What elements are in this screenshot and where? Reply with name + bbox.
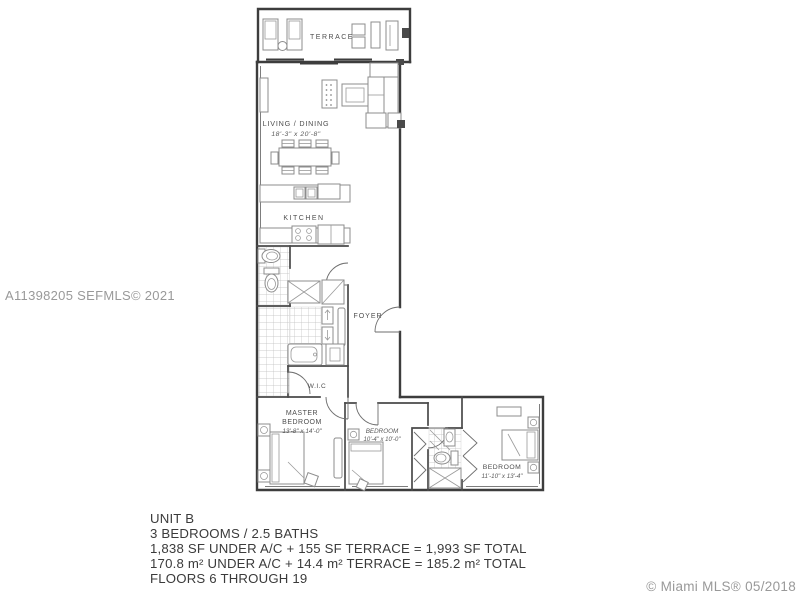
miami-mls-watermark: © Miami MLS® 05/2018 — [646, 579, 796, 594]
wic-label: W.I.C — [308, 383, 326, 390]
terrace-table — [371, 22, 380, 48]
bench — [334, 438, 342, 478]
bedroom2-dims: 10'-4" x 10'-0" — [364, 437, 402, 443]
toilet-tank — [264, 268, 279, 274]
nightstand — [258, 470, 270, 482]
foyer-label: FOYER — [353, 313, 382, 320]
master-bath-floor-2 — [290, 307, 321, 344]
master-bath-floor — [259, 307, 290, 396]
terrace-label: TERRACE — [310, 34, 354, 41]
side-table — [278, 42, 287, 51]
kitchen-fixtures — [260, 184, 350, 244]
stove — [292, 226, 316, 243]
sofa-back — [370, 63, 398, 77]
console — [260, 78, 268, 112]
sqft-line: 1,838 SF UNDER A/C + 155 SF TERRACE = 1,… — [150, 541, 527, 556]
dining-table — [279, 148, 331, 166]
tv-console — [322, 80, 337, 108]
bedroom3-bifold-doors — [463, 430, 477, 482]
floors-line: FLOORS 6 THROUGH 19 — [150, 571, 527, 586]
dresser — [497, 407, 521, 416]
bedroom2-label: BEDROOM — [366, 428, 399, 435]
hall-bench — [338, 308, 345, 346]
sqm-line: 170.8 m² UNDER A/C + 14.4 m² TERRACE = 1… — [150, 556, 527, 571]
bedroom3-label: BEDROOM — [483, 464, 522, 471]
floorplan-page: TERRACE LIVING / DINING 18'-3" x 20'-8" … — [0, 0, 800, 600]
living-dims: 18'-3" x 20'-8" — [271, 131, 320, 138]
vanity-sink — [326, 344, 344, 365]
master-label-1: MASTER — [286, 410, 318, 417]
toilet-tank — [451, 451, 458, 465]
wic-door — [288, 372, 310, 394]
nightstand — [528, 417, 539, 428]
mls-listing-watermark: A11398205 SEFMLS© 2021 — [5, 288, 175, 303]
bedroom3-dims: 11'-10" x 13'-4" — [481, 473, 523, 480]
bedroom2-closet-doors — [414, 432, 426, 482]
unit-name: UNIT B — [150, 511, 527, 526]
bedroom2-door — [356, 403, 378, 425]
living-label: LIVING / DINING — [263, 119, 330, 128]
nightstand — [348, 429, 359, 440]
counter-appliance — [318, 184, 340, 199]
rug — [304, 473, 318, 487]
nightstand — [258, 424, 270, 436]
walls — [257, 9, 543, 490]
master-label-2: BEDROOM — [282, 419, 322, 426]
terrace-bench — [386, 21, 398, 50]
side-table — [397, 120, 405, 128]
column — [402, 28, 409, 38]
master-bed — [270, 432, 304, 484]
bed — [349, 442, 383, 484]
unit-summary: UNIT B 3 BEDROOMS / 2.5 BATHS 1,838 SF U… — [150, 511, 527, 586]
nightstand — [528, 462, 539, 473]
ottoman — [366, 113, 386, 128]
kitchen-label: KITCHEN — [283, 215, 324, 222]
master-dims: 13'-8" x 14'-0" — [282, 428, 322, 435]
beds-baths-line: 3 BEDROOMS / 2.5 BATHS — [150, 526, 527, 541]
